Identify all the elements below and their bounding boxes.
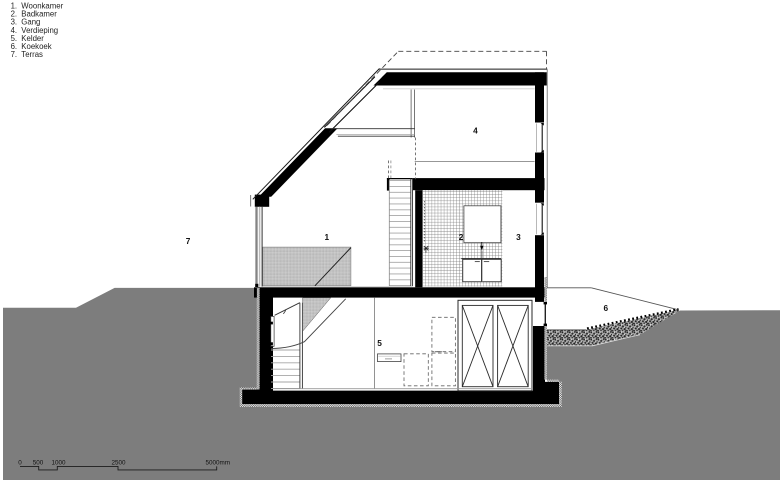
- svg-text:6: 6: [603, 303, 608, 313]
- svg-text:1000: 1000: [52, 459, 67, 466]
- svg-text:2: 2: [459, 232, 464, 242]
- svg-text:3: 3: [516, 232, 521, 242]
- svg-text:7.: 7.: [11, 50, 18, 59]
- svg-text:4: 4: [473, 126, 478, 136]
- svg-text:5000mm: 5000mm: [206, 459, 231, 466]
- svg-text:Terras: Terras: [21, 50, 43, 59]
- svg-text:7: 7: [186, 236, 191, 246]
- svg-text:1: 1: [324, 232, 329, 242]
- svg-text:5: 5: [377, 338, 382, 348]
- svg-text:0: 0: [18, 459, 22, 466]
- svg-text:500: 500: [33, 459, 44, 466]
- svg-text:2500: 2500: [112, 459, 127, 466]
